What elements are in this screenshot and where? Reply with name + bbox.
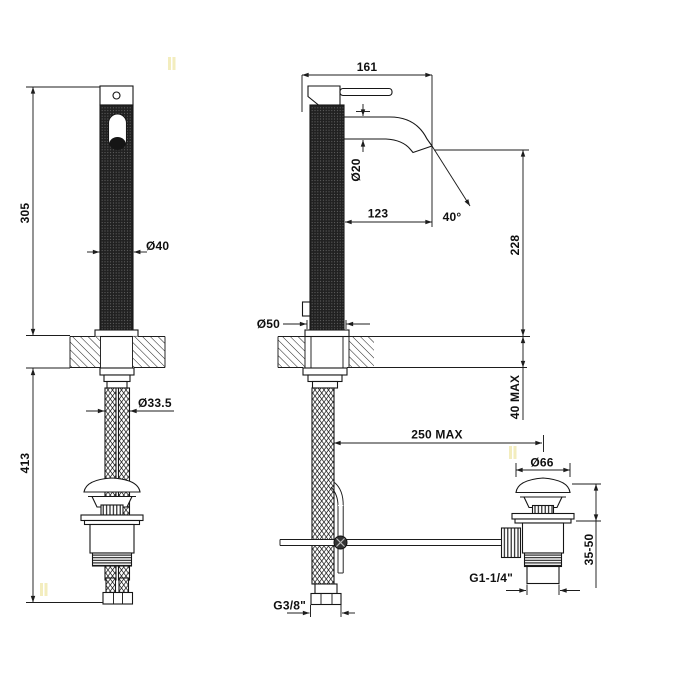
pop-up-waste-side: Ø66 35-50 G1-1/4": [469, 456, 601, 596]
pop-up-waste-front: [81, 478, 143, 566]
dim-waste-adjust-range: 35-50: [572, 484, 601, 588]
base-plate-side: [305, 330, 349, 337]
dim-spout-reach: 123: [345, 207, 432, 223]
dim-spout-outlet-height: 228: [434, 150, 529, 336]
technical-drawing-page: 305 Ø40: [0, 0, 700, 700]
dim-waste-outlet-thread: G1-1/4": [469, 571, 580, 595]
faucet-dimension-drawing: 305 Ø40: [0, 0, 700, 700]
waste-flange-front: [81, 515, 143, 521]
label-waste-outlet-thread: G1-1/4": [469, 571, 513, 585]
waste-thread-side: [525, 553, 562, 567]
dim-waste-offset: 250 MAX: [334, 428, 544, 453]
label-spout-outlet-height: 228: [508, 235, 522, 256]
faucet-cap-side: [308, 86, 340, 105]
faucet-front-view: 305 Ø40: [18, 86, 174, 604]
dim-spout-angle: 40°: [432, 146, 470, 224]
label-deck-thickness: 40 MAX: [508, 375, 522, 420]
spout-outlet-front: [110, 137, 126, 150]
label-height-above-deck: 305: [18, 203, 32, 224]
hose-end-fitting-side: [311, 584, 341, 605]
label-hose-bundle-diameter: Ø33.5: [138, 396, 172, 410]
waste-cap-front: [84, 478, 140, 492]
waste-cap-side: [516, 478, 570, 493]
waste-body-front: [90, 525, 134, 554]
waste-flange-side: [512, 514, 574, 520]
label-waste-adjust-range: 35-50: [582, 534, 596, 566]
label-spout-reach: 123: [368, 207, 389, 221]
mounting-clip-side: [303, 302, 311, 316]
hose-end-fittings-front: [103, 578, 133, 604]
cap-pin-front: [113, 92, 120, 99]
label-body-diameter: Ø40: [146, 239, 169, 253]
label-overall-depth: 161: [357, 60, 378, 74]
lever-handle-side: [340, 89, 392, 96]
countertop-front: [70, 337, 165, 368]
spout-side: [344, 117, 432, 153]
dim-spout-diameter: Ø20: [349, 104, 370, 182]
waste-rod-port-side: [502, 528, 521, 558]
waste-rod-port-front: [101, 505, 123, 515]
base-plate-front: [95, 330, 138, 337]
dim-waste-cap-diameter: Ø66: [516, 456, 570, 478]
label-waste-offset: 250 MAX: [411, 428, 462, 442]
knurled-body-side: [310, 105, 344, 330]
label-base-diameter: Ø50: [257, 317, 280, 331]
label-spout-diameter: Ø20: [349, 158, 363, 181]
dim-height-above-deck: 305: [18, 87, 100, 336]
waste-thread-front: [93, 553, 132, 566]
label-length-below-deck: 413: [18, 453, 32, 474]
waste-body-side: [523, 523, 564, 553]
label-spout-angle: 40°: [443, 210, 462, 224]
label-supply-thread: G3/8": [273, 599, 306, 613]
label-waste-cap-diameter: Ø66: [530, 456, 553, 470]
waste-tailpiece-side: [527, 567, 559, 584]
countertop-side: [278, 337, 530, 368]
supply-hose-side: [312, 388, 334, 584]
mounting-shank-side: [303, 368, 347, 388]
dim-deck-thickness: 40 MAX: [508, 337, 523, 421]
faucet-side-view: 161 Ø20 123 40° 228: [257, 60, 544, 617]
mounting-shank-front: [100, 368, 134, 388]
